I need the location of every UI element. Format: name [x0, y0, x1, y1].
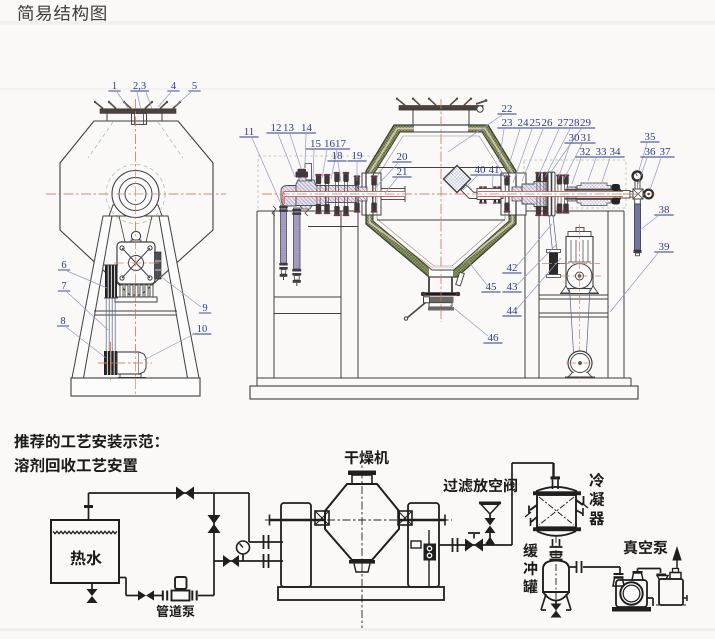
svg-text:29: 29 — [580, 117, 592, 129]
svg-text:41: 41 — [489, 164, 500, 176]
svg-text:31: 31 — [581, 132, 592, 144]
svg-text:37: 37 — [660, 146, 672, 158]
svg-text:5: 5 — [192, 81, 197, 92]
svg-text:46: 46 — [488, 332, 500, 344]
svg-text:9: 9 — [202, 303, 207, 314]
svg-text:27: 27 — [558, 117, 570, 129]
svg-text:34: 34 — [610, 146, 622, 158]
svg-text:18: 18 — [332, 150, 344, 162]
svg-text:30: 30 — [569, 132, 581, 144]
svg-text:11: 11 — [244, 126, 255, 138]
svg-text:20: 20 — [397, 151, 409, 163]
svg-text:24: 24 — [518, 117, 530, 129]
svg-text:21: 21 — [397, 166, 408, 178]
svg-text:39: 39 — [659, 241, 671, 253]
svg-text:33: 33 — [596, 146, 608, 158]
svg-text:22: 22 — [502, 103, 513, 115]
svg-text:1: 1 — [112, 81, 117, 92]
svg-text:32: 32 — [580, 146, 591, 158]
svg-text:43: 43 — [507, 281, 519, 293]
svg-text:40: 40 — [475, 164, 487, 176]
svg-text:23: 23 — [502, 117, 514, 129]
svg-text:26: 26 — [542, 117, 554, 129]
svg-text:44: 44 — [507, 305, 519, 317]
svg-text:19: 19 — [352, 150, 364, 162]
svg-text:16: 16 — [324, 138, 336, 150]
svg-text:28: 28 — [569, 117, 581, 129]
svg-text:42: 42 — [507, 262, 518, 274]
svg-text:17: 17 — [335, 138, 347, 150]
svg-text:8: 8 — [60, 316, 65, 327]
svg-text:6: 6 — [61, 260, 66, 271]
svg-text:2,3: 2,3 — [133, 81, 146, 92]
svg-text:38: 38 — [659, 204, 671, 216]
svg-text:45: 45 — [486, 281, 498, 293]
svg-text:13: 13 — [283, 122, 295, 134]
svg-text:35: 35 — [645, 131, 657, 143]
svg-text:14: 14 — [301, 122, 313, 134]
svg-text:12: 12 — [271, 122, 282, 134]
svg-text:4: 4 — [171, 81, 177, 92]
svg-text:10: 10 — [197, 324, 208, 335]
svg-text:7: 7 — [61, 281, 66, 292]
svg-text:25: 25 — [530, 117, 542, 129]
svg-text:15: 15 — [310, 138, 322, 150]
svg-text:36: 36 — [645, 146, 657, 158]
